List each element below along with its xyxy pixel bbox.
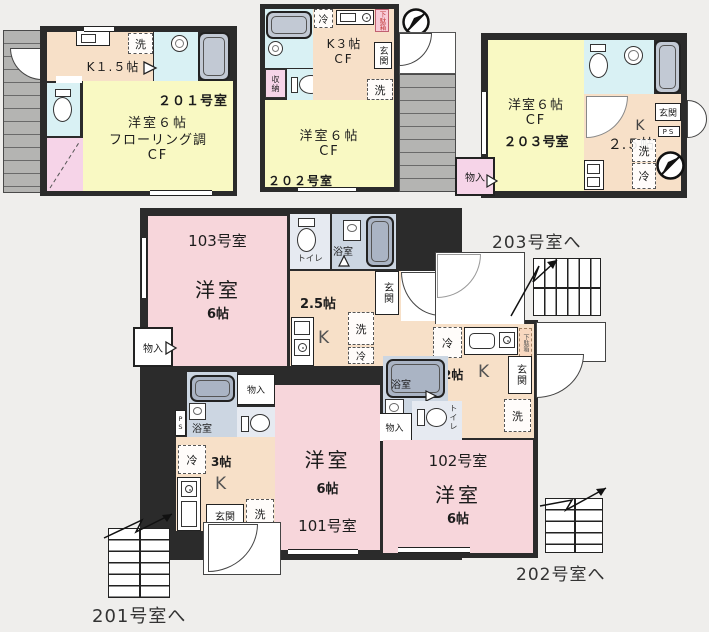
- stairs-label-201: 201号室へ: [92, 602, 186, 628]
- window: [288, 549, 358, 555]
- stairs-arrow: [505, 246, 565, 326]
- unit-102-storage: 物入: [377, 413, 412, 442]
- room-size-label: 6帖: [275, 478, 380, 496]
- sink-icon: [189, 403, 206, 420]
- kitchen-size-label: 2.5帖: [300, 293, 336, 312]
- kitchen-sink-icon: [177, 477, 201, 531]
- stairs-arrow: [98, 500, 178, 544]
- flooring-label: フローリング調: [83, 129, 233, 147]
- door-swing-triangle: [486, 173, 498, 189]
- toilet-icon: [426, 408, 447, 427]
- door-opening: [56, 76, 82, 83]
- cf-label: CF: [313, 51, 375, 66]
- window: [298, 187, 356, 192]
- cf-label: CF: [83, 146, 233, 164]
- kitchen-size-label: K３帖: [313, 36, 375, 51]
- window: [398, 547, 470, 553]
- bathtub-icon: [198, 32, 230, 81]
- toilet-label: トイレ: [448, 404, 459, 431]
- pipe-space-label: PS: [658, 126, 680, 137]
- entrance-label-box: 玄関: [375, 271, 399, 315]
- closet-diagonal: [47, 138, 83, 191]
- toilet-icon: [55, 89, 71, 97]
- toilet-icon: [298, 218, 315, 227]
- room-type-label: 洋室: [168, 275, 268, 301]
- bathtub-icon: [266, 11, 312, 39]
- kitchen-k-label: K: [318, 328, 329, 348]
- kitchen-sink-icon: [336, 10, 374, 25]
- bath-label: 浴室: [391, 376, 411, 391]
- toilet-icon: [590, 44, 606, 52]
- fridge-space: 冷: [314, 9, 333, 28]
- washer-space: 洗: [367, 79, 393, 100]
- entrance-label-box: 玄関: [374, 42, 392, 69]
- fridge-space: 冷: [178, 445, 206, 474]
- cf-label: CF: [488, 112, 584, 128]
- toilet-icon: [589, 53, 608, 78]
- kitchen-sink-icon: [584, 160, 604, 190]
- door-swing-triangle: [337, 254, 351, 268]
- sink-icon: [343, 220, 361, 241]
- toilet-icon: [297, 228, 316, 252]
- entrance-label-box: 玄関: [655, 103, 681, 121]
- room-number-101: 101号室: [275, 515, 380, 535]
- door-arc: [536, 354, 584, 398]
- kitchen-sink-icon: [464, 327, 518, 355]
- washer-space: 洗: [504, 399, 531, 432]
- unit-201-closet: [47, 138, 83, 191]
- entrance-label: 玄関: [377, 46, 390, 66]
- room-number-203: ２０３号室: [488, 132, 584, 148]
- kitchen-size-label: 3帖: [211, 453, 231, 470]
- sink-icon: [171, 35, 188, 52]
- kitchen-sink-icon: [291, 317, 314, 366]
- door-arc: [687, 100, 707, 138]
- room-number-103: 103号室: [165, 230, 270, 250]
- room-number-102: 102号室: [398, 450, 518, 470]
- room-size-label: 6帖: [168, 303, 268, 321]
- washer-space: 洗: [348, 312, 374, 345]
- sink-icon: [624, 46, 643, 65]
- unit-202-storage: 収納: [265, 69, 286, 98]
- stairs-outside-202: [399, 74, 456, 192]
- shoe-box-label: 下駄箱: [377, 11, 387, 31]
- window: [141, 238, 147, 298]
- toilet-label: トイレ: [290, 252, 330, 264]
- shoe-box: 下駄箱: [375, 9, 389, 32]
- unit-101-storage: 物入: [237, 374, 275, 405]
- bathtub-icon: [366, 216, 394, 267]
- entrance-label: 玄関: [513, 364, 528, 386]
- bathtub-icon: [654, 40, 681, 94]
- room-number-201: ２０１号室: [120, 90, 228, 109]
- washer-space: 洗: [128, 33, 153, 54]
- toilet-icon: [241, 416, 249, 432]
- kitchen-k-label: K: [478, 362, 489, 382]
- storage-label: 収納: [270, 75, 281, 93]
- floor-plan-canvas: K１.５帖 洗 ２０１号室 洋室６帖 フローリング調 CF 収納 冷 下駄箱 K…: [0, 0, 709, 632]
- door-swing-triangle: [164, 340, 178, 356]
- room-type-label: 洋室: [403, 480, 513, 506]
- room-type-label: 洋室６帖: [265, 126, 394, 142]
- toilet-icon: [291, 77, 298, 93]
- window: [150, 190, 212, 196]
- room-size-label: 6帖: [403, 508, 513, 526]
- entrance-label: 玄関: [380, 282, 395, 304]
- shoe-box-label: 下駄箱: [521, 334, 530, 352]
- room-type-label: 洋室６帖: [488, 95, 584, 111]
- toilet-icon: [250, 414, 270, 432]
- fridge-space: 冷: [433, 327, 462, 358]
- cf-label: CF: [265, 143, 394, 159]
- shoe-box: 下駄箱: [519, 328, 532, 357]
- sink-icon: [268, 41, 283, 56]
- window: [481, 92, 487, 154]
- pipe-space-label: PS: [177, 415, 185, 431]
- entrance-label-box: 玄関: [508, 356, 532, 394]
- window: [84, 26, 114, 32]
- pipe-space-label-box: PS: [175, 410, 186, 436]
- room-type-label: 洋室６帖: [83, 112, 233, 130]
- fridge-space: 冷: [348, 347, 374, 364]
- kitchen-k-label: K: [215, 474, 226, 494]
- bath-label: 浴室: [192, 420, 212, 435]
- kitchen-sink-icon: [76, 30, 110, 46]
- fridge-space: 冷: [632, 163, 656, 189]
- stairs-label-202: 202号室へ: [516, 560, 605, 585]
- bathtub-icon: [190, 375, 235, 402]
- room-type-label: 洋室: [275, 445, 380, 471]
- washer-space: 洗: [632, 139, 656, 162]
- toilet-icon: [53, 97, 72, 122]
- door-swing-triangle: [142, 60, 158, 76]
- toilet-icon: [417, 409, 425, 426]
- compass-icon: [655, 150, 686, 181]
- kitchen-size-label: K１.５帖: [78, 58, 148, 74]
- stairs-arrow: [536, 476, 612, 516]
